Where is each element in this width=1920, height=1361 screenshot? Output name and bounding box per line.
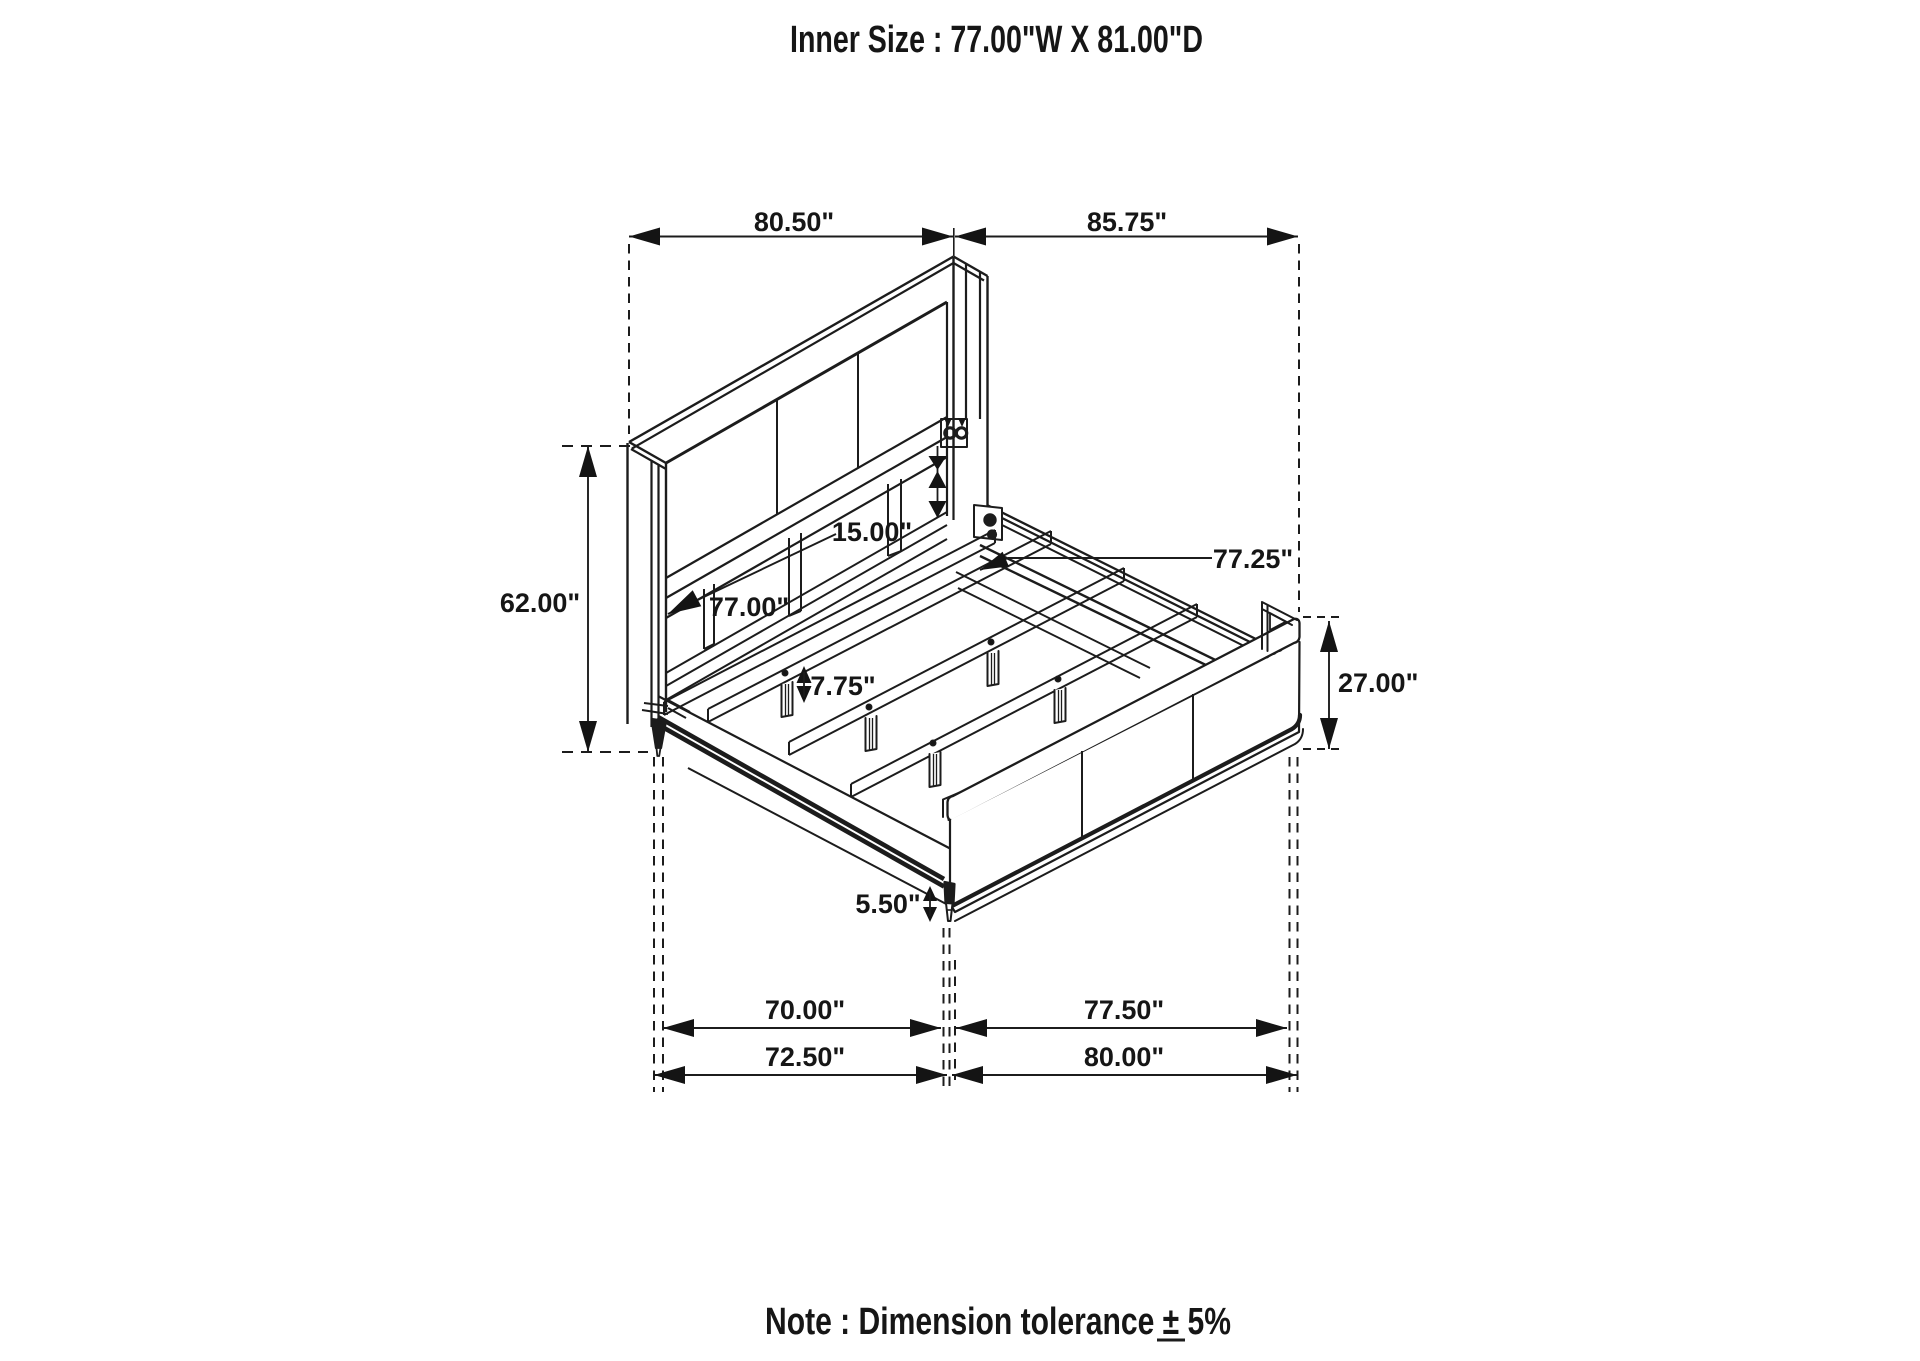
svg-text:70.00": 70.00" [765, 995, 845, 1025]
svg-text:77.50": 77.50" [1084, 995, 1164, 1025]
svg-text:77.25": 77.25" [1213, 544, 1293, 574]
svg-text:80.50": 80.50" [754, 207, 834, 237]
svg-text:27.00": 27.00" [1338, 668, 1418, 698]
svg-text:72.50": 72.50" [765, 1042, 845, 1072]
svg-text:62.00": 62.00" [500, 588, 580, 618]
svg-text:5.50": 5.50" [855, 889, 920, 919]
svg-text:7.75": 7.75" [810, 671, 875, 701]
svg-text:77.00": 77.00" [709, 592, 789, 622]
svg-text:15.00": 15.00" [832, 517, 912, 547]
svg-text:Inner Size : 77.00"W X 81.00"D: Inner Size : 77.00"W X 81.00"D [790, 19, 1203, 61]
svg-text:85.75": 85.75" [1087, 207, 1167, 237]
svg-text:Note : Dimension tolerance ± 5: Note : Dimension tolerance ± 5% [765, 1301, 1231, 1343]
svg-text:80.00": 80.00" [1084, 1042, 1164, 1072]
